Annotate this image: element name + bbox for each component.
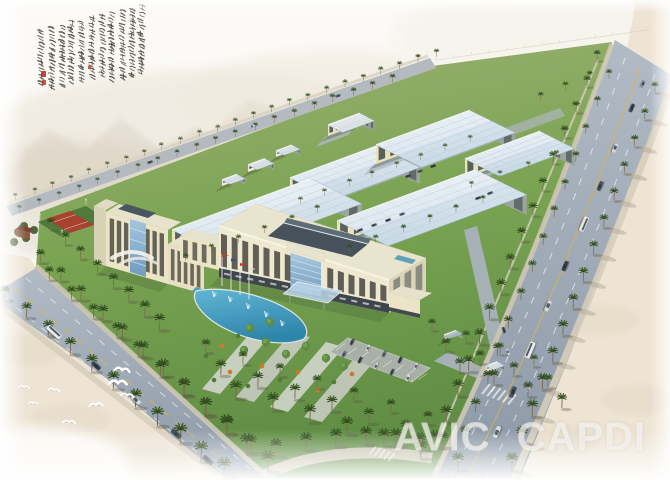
watermark-text: AVIC CAPDI xyxy=(394,417,670,457)
architectural-rendering-canvas: AVIC CAPDI xyxy=(0,0,670,480)
rendering-scene xyxy=(0,0,670,480)
